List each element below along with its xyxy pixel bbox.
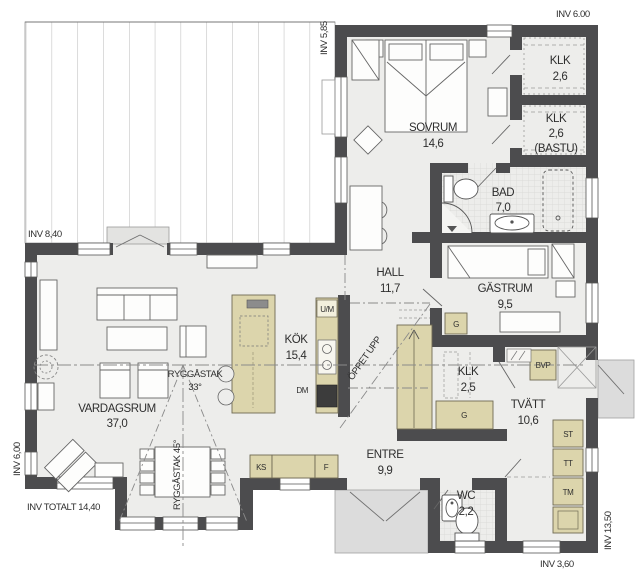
window (25, 383, 37, 410)
deck-door-landing (107, 227, 169, 247)
cabinet (38, 383, 54, 410)
dresser (488, 88, 507, 116)
dim-deck-left: INV 8,40 (28, 229, 62, 240)
room-label-klk3: KLK (458, 366, 479, 378)
coffee-table (107, 327, 167, 350)
window (25, 262, 37, 277)
deck-terrace (25, 22, 335, 243)
dim-left-vertical: INV 6,00 (12, 442, 23, 476)
room-area-wc: 2,2 (459, 506, 474, 518)
window (586, 178, 598, 218)
dim-top-mid-vertical: INV 5,85 (319, 21, 330, 55)
dim-bottom-right: INV 3,60 (540, 559, 574, 570)
ridge-45-label: RYGGÅSTAK 45° (172, 439, 183, 510)
dim-right-vertical: INV 13,50 (603, 511, 614, 550)
side-table (556, 281, 575, 297)
window (335, 77, 347, 137)
room-area-klk2: 2,6 (549, 128, 564, 140)
room-label-tvatt: TVÄTT (511, 399, 546, 411)
desk (350, 186, 382, 250)
room-label-gastrum: GÄSTRUM (478, 283, 533, 295)
window-bench (207, 255, 257, 268)
room-label-entre: ENTRE (367, 449, 405, 461)
window (586, 283, 598, 323)
tag-st: ST (563, 430, 573, 439)
floor-plan-page: VARDAGSRUM 37,0 KÖK 15,4 SOVRUM 14,6 KLK… (0, 0, 640, 576)
room-area-klk1: 2,6 (553, 71, 568, 83)
room-area-bad: 7,0 (496, 202, 511, 214)
room-area-gastrum: 9,5 (498, 299, 513, 311)
tag-dm: DM (296, 386, 308, 395)
room-area-tvatt: 10,6 (518, 415, 539, 427)
window (335, 157, 347, 203)
room-area-klk3: 2,5 (461, 382, 476, 394)
bar-stool (218, 389, 234, 405)
tag-f: F (324, 463, 329, 472)
room-area-sovrum: 14,6 (423, 138, 444, 150)
staircase (397, 310, 432, 429)
room-area-kok: 15,4 (286, 350, 308, 362)
entrance-porch (335, 490, 428, 553)
room-label-kok: KÖK (284, 334, 308, 346)
dim-top-right: INV 6.00 (556, 9, 590, 20)
tag-bvp: BVP (536, 361, 551, 370)
sideboard (95, 463, 123, 477)
kitchen-counter (316, 298, 338, 413)
dim-bottom-left-total: INV TOTALT 14,40 (27, 502, 100, 513)
armchair (138, 363, 168, 398)
room-area-entre: 9,9 (378, 465, 393, 477)
armchair (100, 363, 130, 398)
tv-bench (40, 280, 57, 350)
ridge-33-angle: 33° (188, 382, 202, 393)
guest-desk (500, 312, 560, 332)
tag-um: U/M (320, 305, 334, 314)
window (163, 517, 198, 530)
window (263, 243, 290, 255)
window (523, 541, 560, 553)
toilet-bowl (454, 179, 478, 199)
room-label-wc: WC (457, 490, 475, 502)
window (206, 517, 238, 530)
room-label-klk1: KLK (550, 55, 571, 67)
room-label-hall: HALL (376, 267, 404, 279)
tag-ks: KS (256, 463, 266, 472)
window (487, 25, 512, 37)
tag-tm: TM (563, 488, 574, 497)
dishwasher (317, 385, 337, 407)
window (455, 541, 485, 553)
room-label-vardagsrum: VARDAGSRUM (78, 403, 156, 415)
wc-toilet-tank (455, 533, 479, 541)
window (586, 448, 598, 472)
window (25, 452, 37, 475)
room-area-vardagsrum: 37,0 (107, 418, 128, 430)
room-label-bad: BAD (492, 187, 515, 199)
window (170, 243, 197, 255)
armchair (180, 326, 206, 357)
tag-tt: TT (564, 459, 573, 468)
room-note-bastu: (BASTU) (534, 143, 578, 155)
nightstand (469, 40, 486, 57)
sofa (97, 288, 177, 320)
tag-g-hall: G (453, 320, 459, 329)
window (120, 517, 155, 530)
side-door-landing (598, 360, 634, 418)
room-label-klk2: KLK (546, 113, 567, 125)
tag-g-klk: G (461, 411, 467, 420)
floor-plan-svg: VARDAGSRUM 37,0 KÖK 15,4 SOVRUM 14,6 KLK… (0, 0, 640, 576)
window (280, 478, 310, 490)
ridge-33-label: RYGGÅSTAK (168, 369, 224, 380)
room-area-hall: 11,7 (380, 283, 400, 295)
room-label-sovrum: SOVRUM (409, 122, 457, 134)
toilet-tank (444, 176, 453, 202)
window (78, 243, 110, 255)
